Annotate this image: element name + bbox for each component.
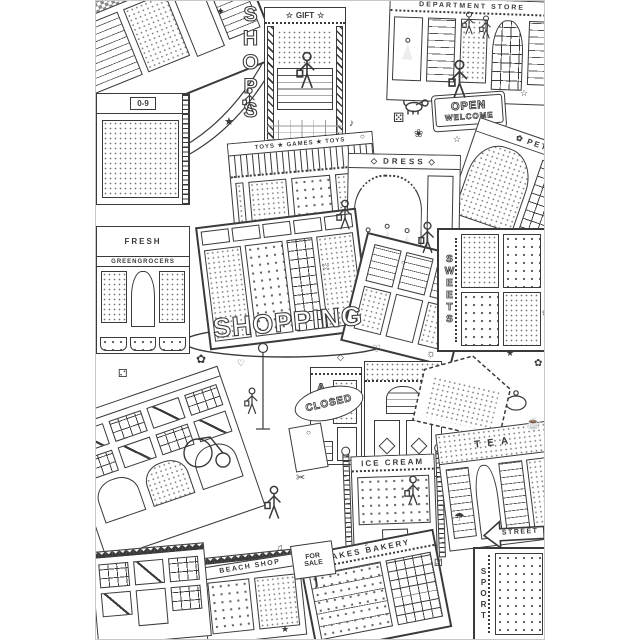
person-figure	[244, 387, 260, 421]
flower-outline-icon: ❀	[542, 309, 545, 319]
shop-door	[385, 294, 423, 343]
sweet-shop: SWEETS	[437, 228, 545, 352]
person-figure	[448, 59, 471, 105]
window	[108, 410, 147, 442]
window	[146, 397, 185, 429]
store-double-door	[491, 20, 524, 91]
dice-two-icon: ⚁	[434, 559, 443, 569]
trinket-shop: 0-9	[96, 93, 190, 205]
window	[184, 384, 223, 416]
star-icon: ☆	[286, 11, 293, 20]
sparkle-icon: ✦	[216, 7, 225, 18]
basket	[100, 337, 127, 351]
tea-room-sign-label: TEA	[474, 435, 516, 451]
for-sale-line2: SALE	[304, 559, 323, 569]
star-outline-icon: ☆	[520, 89, 528, 98]
mannequin-head	[405, 38, 410, 43]
greengrocer-shop: FRESH GREENGROCERS	[96, 226, 190, 354]
greengrocer-door	[131, 271, 155, 327]
beach-shop-window	[254, 574, 301, 630]
basket	[130, 337, 157, 351]
sweet-shop-window	[461, 234, 499, 288]
greengrocer-window	[101, 271, 127, 323]
gift-shop-sign: ☆ GIFT ☆	[265, 8, 345, 24]
sweet-shop-sign: SWEETS	[441, 238, 457, 342]
dice-five-icon: ⚄	[393, 111, 404, 124]
for-sale-post	[315, 577, 318, 587]
produce-baskets	[100, 337, 186, 351]
diamond-icon: ◇	[371, 156, 380, 165]
dress-shop-sign-label: DRESS	[383, 157, 426, 167]
department-store-sign-label: DEPARTMENT STORE	[419, 1, 525, 12]
greengrocer-front	[97, 267, 189, 331]
window	[168, 556, 200, 583]
heart-icon: ♡	[237, 359, 245, 368]
window	[98, 562, 130, 589]
mannequin-dress	[402, 44, 414, 60]
sun-icon: ☼	[426, 349, 436, 360]
person-figure	[296, 51, 318, 96]
transom-window	[201, 228, 230, 245]
for-sale-sign: FOR SALE	[290, 540, 338, 591]
paw-icon: ✿	[515, 133, 526, 144]
display-window-mannequin	[392, 16, 423, 81]
person-figure	[418, 221, 437, 260]
flower-outline-icon: ❀	[414, 129, 423, 140]
sweet-shop-front	[461, 234, 541, 346]
beach-shop-window	[207, 578, 254, 634]
star-icon: ★	[224, 117, 234, 128]
greengrocer-sign: GREENGROCERS	[97, 257, 189, 267]
transom-window	[231, 224, 260, 241]
music-notes-icon: ♫	[276, 544, 284, 554]
star-outline-icon: ☆	[321, 263, 330, 273]
sport-shop-sign: SPORT	[477, 555, 490, 633]
umbrella-icon: ☂	[454, 511, 465, 523]
music-note-icon: ♪	[349, 119, 354, 129]
greengrocer-window	[159, 271, 185, 323]
art-shop-parapet	[311, 368, 361, 375]
greengrocer-arch: FRESH	[97, 227, 189, 257]
person-figure	[479, 15, 493, 45]
shops-side-title: SHOPS	[238, 3, 262, 145]
trinket-shop-pole	[182, 94, 189, 204]
star-icon: ☆	[317, 11, 324, 20]
fresh-label: FRESH	[124, 237, 161, 246]
window	[170, 585, 202, 612]
person-figure	[336, 199, 354, 236]
ice-cream-sign-label: ICE CREAM	[361, 457, 424, 468]
penny-farthing-icon	[180, 429, 232, 469]
house-door	[136, 588, 169, 626]
street-arrow-sign: STREET	[481, 517, 545, 550]
window	[101, 591, 133, 618]
house-windows	[95, 549, 210, 635]
trinket-shop-sign-label: 0-9	[130, 97, 156, 110]
circle-icon: ○	[360, 133, 365, 141]
window	[133, 559, 165, 586]
sport-shop: SPORT	[473, 547, 545, 640]
dice-two-icon: ⚁	[118, 369, 128, 380]
circle-icon: ○	[306, 429, 311, 437]
tea-room-window	[446, 467, 478, 539]
shop-window	[365, 244, 401, 288]
gift-shop-sign-label: GIFT	[296, 11, 314, 20]
star-icon: ★	[281, 625, 289, 634]
sweet-shop-window	[503, 292, 541, 346]
trinket-shop-sign: 0-9	[97, 94, 189, 114]
transom-window	[262, 221, 291, 238]
dog-figure	[402, 97, 430, 120]
person-figure	[462, 11, 476, 41]
heart-icon: ♡	[372, 345, 381, 355]
ice-cream-sign: ICE CREAM	[351, 455, 433, 473]
closed-sign-label: CLOSED	[305, 393, 354, 414]
basket	[159, 337, 186, 351]
person-figure	[404, 475, 422, 512]
sport-shop-window	[495, 553, 543, 635]
diamond-icon: ◇	[429, 157, 438, 166]
diamond-icon: ◇	[337, 353, 344, 362]
coloring-poster: SHOPS ☆ GIFT ☆ DEPARTMENT STORE	[95, 0, 545, 640]
beach-shop-front	[202, 568, 306, 640]
star-icon: ★	[506, 349, 514, 358]
window	[118, 437, 157, 469]
transom-window	[293, 217, 322, 234]
star-outline-icon: ☆	[453, 135, 461, 144]
sweet-shop-window	[461, 292, 499, 346]
sweet-shop-window	[503, 234, 541, 288]
teacup-icon: ☕	[526, 417, 541, 429]
sparkle-icon: ✦	[192, 544, 200, 553]
flower-icon: ✿	[196, 353, 206, 365]
circle-icon: ○	[401, 259, 406, 267]
person-figure	[264, 485, 284, 526]
bunting-house	[95, 542, 212, 640]
shop-window	[527, 21, 545, 86]
beach-shop: BEACH SHOP	[199, 548, 308, 640]
music-note-icon: ♪	[364, 539, 369, 548]
greengrocer-sign-label: GREENGROCERS	[111, 259, 175, 265]
for-sale-board: FOR SALE	[290, 540, 336, 580]
person-figure	[242, 87, 257, 119]
flower-icon: ✿	[534, 359, 542, 369]
trinket-shop-window	[102, 120, 179, 198]
scissors-icon: ✂	[296, 473, 305, 484]
